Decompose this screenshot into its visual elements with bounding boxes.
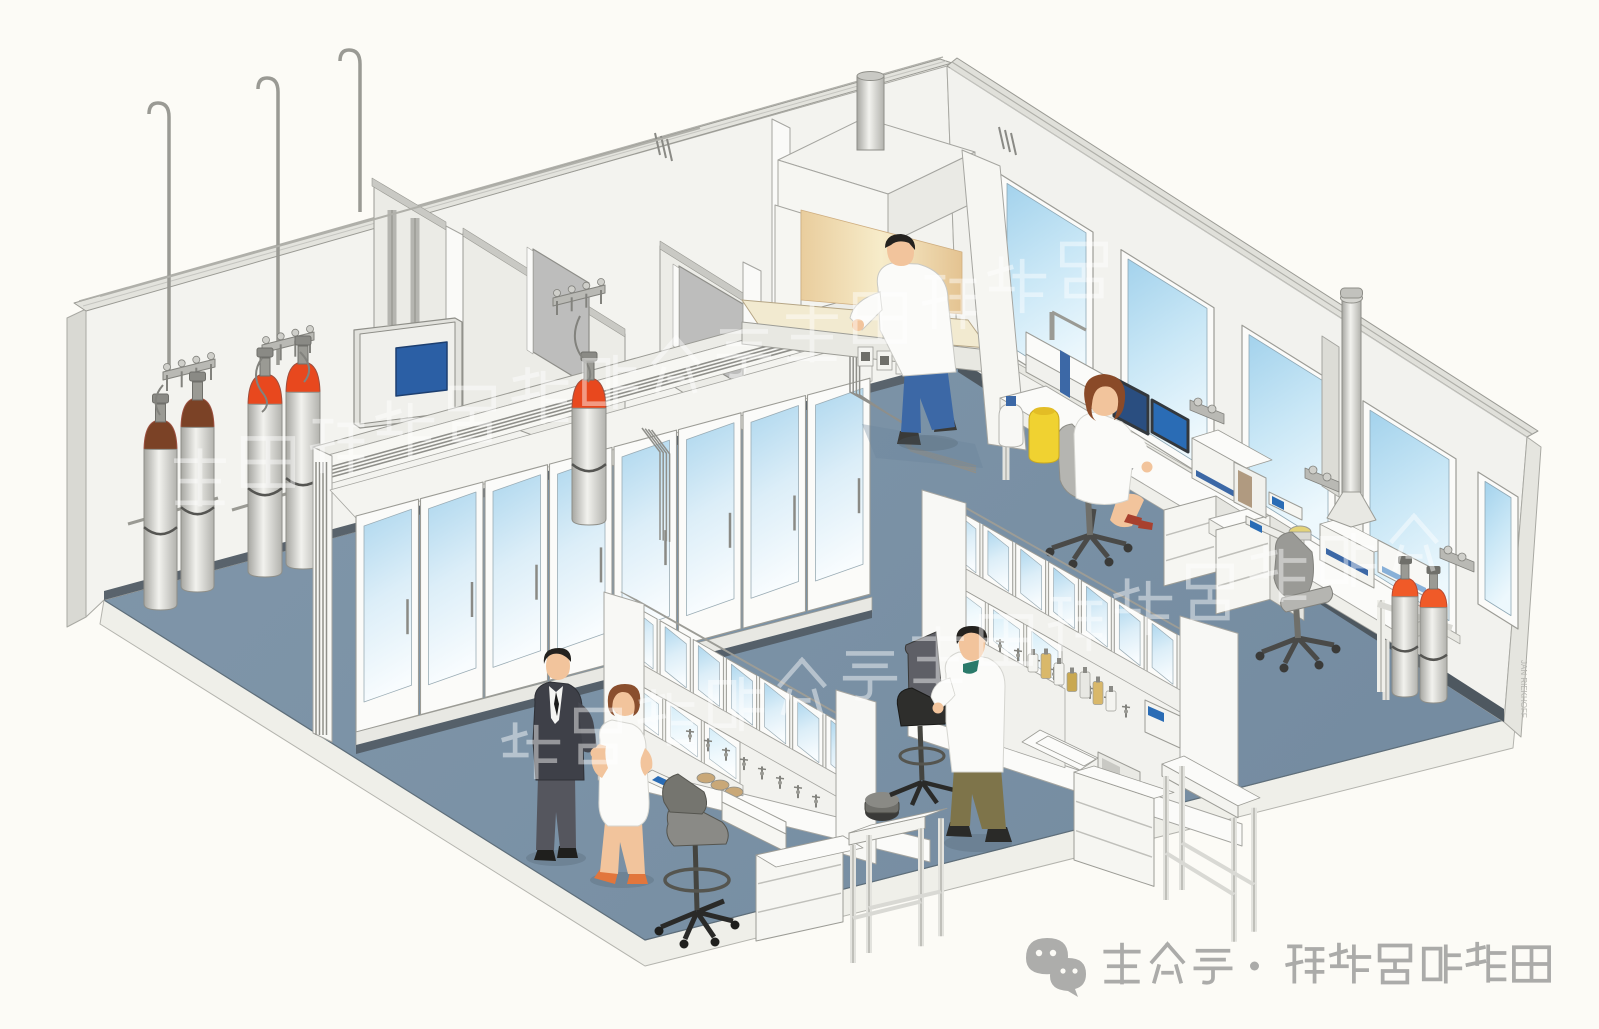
svg-text:JAN RIEKHOFF: JAN RIEKHOFF xyxy=(1519,660,1528,718)
